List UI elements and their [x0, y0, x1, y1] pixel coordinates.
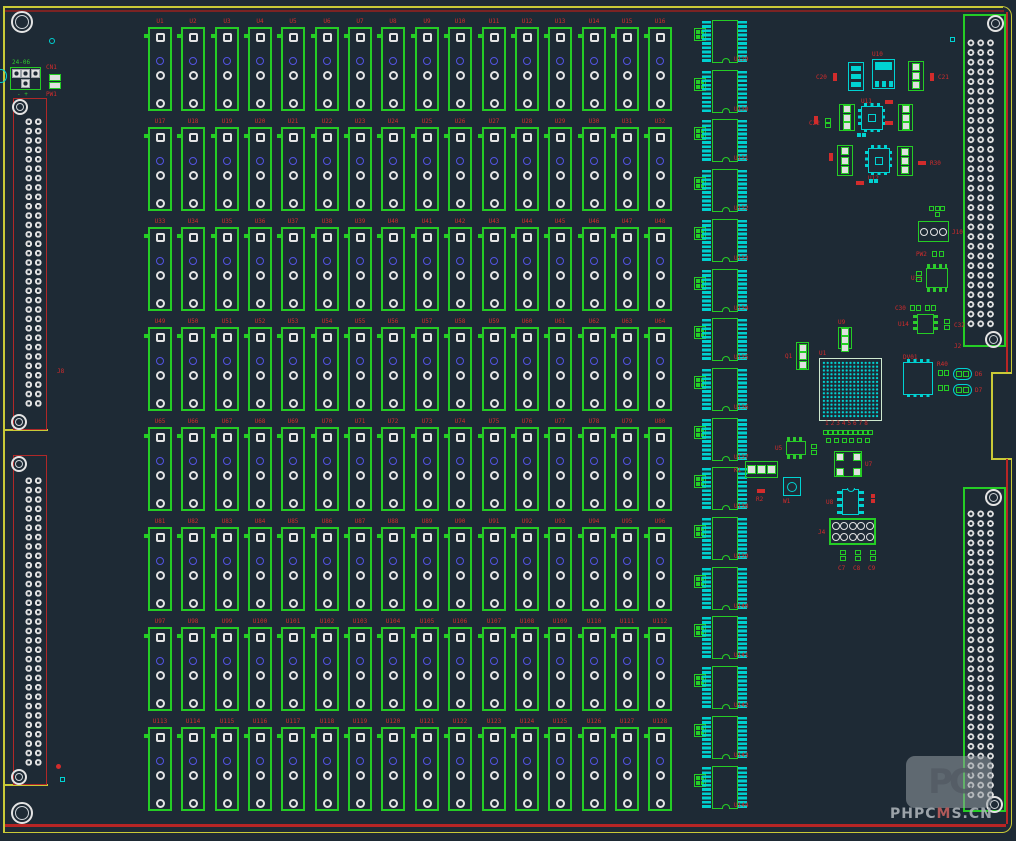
- pad: [423, 533, 432, 542]
- ref-designator: U88: [376, 518, 410, 525]
- pad: [799, 361, 807, 369]
- relay-component[interactable]: [448, 427, 472, 511]
- relay-component[interactable]: [515, 227, 539, 311]
- chip-2pad-component[interactable]: [931, 250, 945, 258]
- relay-component[interactable]: [281, 527, 305, 611]
- relay-component[interactable]: [515, 727, 539, 811]
- pin1-mark: [311, 334, 315, 338]
- terminal-block-component[interactable]: [918, 221, 949, 242]
- relay-component[interactable]: [548, 527, 572, 611]
- pad: [356, 33, 365, 42]
- pad: [556, 633, 565, 642]
- relay-component[interactable]: [582, 27, 606, 111]
- relay-component[interactable]: [348, 527, 372, 611]
- relay-component[interactable]: [281, 27, 305, 111]
- pad: [256, 399, 265, 408]
- relay-component[interactable]: [215, 327, 239, 411]
- pad: [916, 277, 922, 282]
- relay-component[interactable]: [215, 427, 239, 511]
- relay-component[interactable]: [248, 727, 272, 811]
- dip-ic-component[interactable]: U141: [694, 616, 750, 662]
- dip-ic-component[interactable]: U139: [694, 517, 750, 563]
- pad: [944, 385, 949, 391]
- signal-connector-component[interactable]: [48, 72, 62, 91]
- pad: [901, 157, 909, 165]
- diode-component[interactable]: [953, 368, 972, 380]
- relay-component[interactable]: [648, 627, 672, 711]
- resistor-component[interactable]: [884, 99, 894, 105]
- pad: [930, 228, 938, 236]
- relay-component[interactable]: [515, 427, 539, 511]
- ref-designator: U8: [376, 18, 410, 25]
- bga-ic-component[interactable]: [819, 358, 882, 421]
- pad: [889, 81, 893, 87]
- header-2x8-component[interactable]: [823, 428, 873, 445]
- pin1-mark: [311, 434, 315, 438]
- resistor-component[interactable]: [831, 72, 838, 82]
- pad-coil: [156, 57, 164, 65]
- relay-component[interactable]: [548, 727, 572, 811]
- pad: [323, 699, 332, 708]
- relay-component[interactable]: [148, 727, 172, 811]
- relay-component[interactable]: [615, 627, 639, 711]
- relay-component[interactable]: [181, 627, 205, 711]
- watermark-text-post: S.CN: [951, 806, 992, 822]
- dip8-ic-component[interactable]: [837, 489, 864, 515]
- relay-component[interactable]: [148, 227, 172, 311]
- relay-component[interactable]: [181, 527, 205, 611]
- relay-component[interactable]: [181, 127, 205, 211]
- chip-2pad-component[interactable]: [925, 305, 936, 311]
- chip-2pad-component[interactable]: [868, 548, 878, 563]
- relay-component[interactable]: [148, 327, 172, 411]
- relay-component[interactable]: [448, 27, 472, 111]
- mounting-hole: [11, 456, 27, 472]
- relay-component[interactable]: [548, 627, 572, 711]
- relay-component[interactable]: [215, 627, 239, 711]
- relay-component[interactable]: [482, 627, 506, 711]
- pin1-mark: [611, 134, 615, 138]
- relay-component[interactable]: [381, 327, 405, 411]
- dip-ic-component[interactable]: U140: [694, 567, 750, 613]
- ref-designator: U15: [610, 18, 644, 25]
- pad: [456, 333, 465, 342]
- dip-ic-component[interactable]: U143: [694, 716, 750, 762]
- relay-component[interactable]: [148, 27, 172, 111]
- resistor-component[interactable]: [827, 152, 834, 162]
- pad: [757, 465, 766, 474]
- pad: [832, 522, 840, 530]
- relay-component[interactable]: [482, 127, 506, 211]
- relay-component[interactable]: [281, 427, 305, 511]
- ref-designator: U141: [734, 652, 760, 659]
- pad-coil: [189, 557, 197, 565]
- pad: [490, 371, 499, 380]
- relay-component[interactable]: [148, 527, 172, 611]
- pad: [323, 33, 332, 42]
- relay-component[interactable]: [381, 527, 405, 611]
- chip-2pad-component[interactable]: [824, 118, 831, 128]
- pad: [556, 233, 565, 242]
- relay-component[interactable]: [415, 127, 439, 211]
- dip-ic-component[interactable]: U144: [694, 766, 750, 812]
- pad: [490, 599, 499, 608]
- relay-component[interactable]: [381, 227, 405, 311]
- chip-2pad-component[interactable]: [937, 369, 950, 377]
- relay-component[interactable]: [415, 27, 439, 111]
- pad: [356, 633, 365, 642]
- relay-component[interactable]: [281, 127, 305, 211]
- pad: [323, 199, 332, 208]
- chip-2pad-component[interactable]: [910, 305, 921, 311]
- transistor-3pad-component[interactable]: [839, 104, 855, 131]
- pad-array: [889, 151, 892, 170]
- relay-component[interactable]: [181, 427, 205, 511]
- chip-4pad-component[interactable]: [928, 205, 946, 217]
- resistor-component[interactable]: [869, 493, 876, 504]
- relay-component[interactable]: [348, 27, 372, 111]
- soic-ic-component[interactable]: [786, 437, 806, 459]
- relay-component[interactable]: [215, 227, 239, 311]
- relay-component[interactable]: [648, 327, 672, 411]
- relay-component[interactable]: [548, 327, 572, 411]
- pad: [944, 325, 950, 330]
- transistor-3pad-component[interactable]: [897, 146, 913, 176]
- resistor-component[interactable]: [756, 488, 766, 494]
- pad: [223, 699, 232, 708]
- pad: [289, 433, 298, 442]
- pad: [456, 33, 465, 42]
- pad-array-left: [702, 369, 711, 411]
- relay-component[interactable]: [381, 627, 405, 711]
- capacitor-component[interactable]: [869, 178, 878, 183]
- pad-coil: [289, 557, 297, 565]
- dip-ic-component[interactable]: U142: [694, 666, 750, 712]
- relay-component[interactable]: [515, 27, 539, 111]
- pad: [901, 166, 909, 174]
- pad: [811, 444, 817, 449]
- ref-designator: U93: [543, 518, 577, 525]
- pad: [289, 199, 298, 208]
- relay-component[interactable]: [315, 127, 339, 211]
- relay-component[interactable]: [648, 227, 672, 311]
- relay-component[interactable]: [215, 727, 239, 811]
- relay-component[interactable]: [181, 327, 205, 411]
- relay-component[interactable]: [615, 27, 639, 111]
- relay-component[interactable]: [648, 427, 672, 511]
- pad: [849, 522, 857, 530]
- relay-component[interactable]: [248, 327, 272, 411]
- pad: [656, 133, 665, 142]
- relay-component[interactable]: [348, 427, 372, 511]
- pad: [223, 233, 232, 242]
- sot-component[interactable]: [848, 62, 864, 91]
- ref-designator: U7: [865, 461, 872, 468]
- relay-component[interactable]: [215, 127, 239, 211]
- relay-component[interactable]: [281, 627, 305, 711]
- chip-2pad-component[interactable]: [838, 548, 848, 563]
- relay-component[interactable]: [548, 27, 572, 111]
- relay-component[interactable]: [615, 727, 639, 811]
- pad: [623, 599, 632, 608]
- pcb-canvas[interactable]: U1U2U3U4U5U6U7U8U9U10U11U12U13U14U15U16U…: [0, 0, 1016, 841]
- relay-component[interactable]: [482, 27, 506, 111]
- ref-designator: U85: [276, 518, 310, 525]
- ref-designator: U1: [819, 350, 826, 357]
- relay-component[interactable]: [482, 227, 506, 311]
- relay-component[interactable]: [315, 27, 339, 111]
- transistor-3pad-component[interactable]: [908, 61, 924, 91]
- pad: [289, 633, 298, 642]
- relay-component[interactable]: [415, 627, 439, 711]
- pad: [389, 333, 398, 342]
- relay-component[interactable]: [148, 427, 172, 511]
- resistor-component[interactable]: [855, 180, 865, 186]
- relay-component[interactable]: [582, 727, 606, 811]
- pin1-mark: [177, 234, 181, 238]
- pad: [840, 556, 846, 561]
- pad-array: [787, 437, 805, 441]
- relay-component[interactable]: [548, 427, 572, 511]
- relay-component[interactable]: [348, 327, 372, 411]
- relay-component[interactable]: [448, 727, 472, 811]
- header-2x5-component[interactable]: [829, 518, 876, 545]
- relay-component[interactable]: [615, 427, 639, 511]
- pad: [523, 433, 532, 442]
- ref-designator: U50: [176, 318, 210, 325]
- relay-component[interactable]: [448, 127, 472, 211]
- pad: [842, 438, 847, 443]
- diode-component[interactable]: [953, 384, 972, 396]
- cap-pad: [696, 35, 700, 39]
- relay-component[interactable]: [448, 527, 472, 611]
- pin1-mark: [411, 634, 415, 638]
- pad: [356, 671, 365, 680]
- relay-component[interactable]: [315, 727, 339, 811]
- pad: [456, 533, 465, 542]
- ic-body: [917, 314, 934, 334]
- relay-component[interactable]: [348, 627, 372, 711]
- relay-component[interactable]: [448, 627, 472, 711]
- dip-ic-component[interactable]: U132: [694, 169, 750, 215]
- relay-component[interactable]: [648, 27, 672, 111]
- relay-component[interactable]: [181, 227, 205, 311]
- pad: [556, 399, 565, 408]
- pin1-mark: [544, 734, 548, 738]
- capacitor-component[interactable]: [857, 132, 866, 137]
- qfn-ic-component[interactable]: [868, 148, 890, 173]
- soic-ic-component[interactable]: [926, 264, 948, 292]
- soic-ic-component[interactable]: [913, 314, 938, 334]
- relay-component[interactable]: [548, 227, 572, 311]
- chip-2pad-component[interactable]: [853, 548, 863, 563]
- pad: [356, 799, 365, 808]
- relay-component[interactable]: [582, 327, 606, 411]
- dip-ic-component[interactable]: U129: [694, 20, 750, 66]
- pad-coil: [656, 457, 664, 465]
- pad: [389, 433, 398, 442]
- relay-component[interactable]: [381, 727, 405, 811]
- relay-component[interactable]: [615, 527, 639, 611]
- relay-component[interactable]: [315, 527, 339, 611]
- relay-component[interactable]: [215, 527, 239, 611]
- relay-component[interactable]: [248, 627, 272, 711]
- pad: [256, 71, 265, 80]
- relay-component[interactable]: [315, 227, 339, 311]
- relay-component[interactable]: [515, 127, 539, 211]
- resistor-component[interactable]: [928, 72, 935, 82]
- pin1-mark: [377, 234, 381, 238]
- relay-component[interactable]: [415, 427, 439, 511]
- qfn-ic-component[interactable]: [834, 451, 862, 477]
- chip-2pad-component[interactable]: [810, 443, 818, 456]
- relay-component[interactable]: [381, 427, 405, 511]
- relay-component[interactable]: [315, 327, 339, 411]
- resistor-component[interactable]: [917, 160, 927, 166]
- pad: [456, 271, 465, 280]
- relay-component[interactable]: [415, 527, 439, 611]
- pad: [156, 633, 165, 642]
- pad-coil: [423, 557, 431, 565]
- regulator-component[interactable]: [872, 59, 895, 89]
- pad-coil: [189, 757, 197, 765]
- relay-component[interactable]: [582, 427, 606, 511]
- pin1-mark: [344, 634, 348, 638]
- pin1-mark: [578, 434, 582, 438]
- transistor-3pad-component[interactable]: [796, 342, 809, 370]
- ref-designator: U97: [143, 618, 177, 625]
- relay-component[interactable]: [648, 527, 672, 611]
- relay-component[interactable]: [615, 227, 639, 311]
- chip-2pad-component[interactable]: [937, 384, 950, 392]
- relay-component[interactable]: [415, 227, 439, 311]
- relay-component[interactable]: [582, 627, 606, 711]
- relay-component[interactable]: [348, 227, 372, 311]
- pad: [874, 179, 878, 183]
- relay-component[interactable]: [448, 327, 472, 411]
- relay-component[interactable]: [348, 727, 372, 811]
- dip-ic-component[interactable]: U133: [694, 219, 750, 265]
- dip-ic-component[interactable]: U130: [694, 70, 750, 116]
- pad: [356, 533, 365, 542]
- relay-component[interactable]: [648, 127, 672, 211]
- relay-component[interactable]: [381, 27, 405, 111]
- relay-component[interactable]: [582, 227, 606, 311]
- ref-designator: U38: [310, 218, 344, 225]
- relay-component[interactable]: [248, 127, 272, 211]
- mounting-hole: [11, 802, 33, 824]
- pad: [837, 498, 842, 501]
- pin1-mark: [478, 134, 482, 138]
- pin1-mark: [177, 34, 181, 38]
- pad: [656, 799, 665, 808]
- relay-component[interactable]: [281, 327, 305, 411]
- transistor-3pad-component[interactable]: [898, 104, 913, 131]
- dip-ic-component[interactable]: U138: [694, 467, 750, 513]
- relay-component[interactable]: [482, 727, 506, 811]
- ref-designator: R2: [756, 496, 763, 503]
- relay-component[interactable]: [348, 127, 372, 211]
- pad: [523, 371, 532, 380]
- power-connector-component[interactable]: [10, 67, 41, 90]
- pad-coil: [389, 757, 397, 765]
- relay-component[interactable]: [148, 627, 172, 711]
- dip-ic-component[interactable]: U134: [694, 269, 750, 315]
- chip-2pad-component[interactable]: [943, 317, 951, 332]
- transistor-3pad-component[interactable]: [837, 145, 853, 176]
- qfn-ic-component[interactable]: [861, 106, 883, 130]
- pad-coil: [356, 57, 364, 65]
- relay-component[interactable]: [248, 27, 272, 111]
- relay-component[interactable]: [515, 627, 539, 711]
- pad-coil: [156, 457, 164, 465]
- pin1-mark: [277, 134, 281, 138]
- relay-component[interactable]: [181, 727, 205, 811]
- relay-component[interactable]: [415, 327, 439, 411]
- relay-component[interactable]: [615, 327, 639, 411]
- relay-component[interactable]: [315, 627, 339, 711]
- pad: [623, 433, 632, 442]
- relay-component[interactable]: [515, 327, 539, 411]
- left-connector-lower-pads: [24, 476, 43, 768]
- relay-component[interactable]: [181, 27, 205, 111]
- relay-component[interactable]: [548, 127, 572, 211]
- relay-component[interactable]: [582, 127, 606, 211]
- pad: [832, 533, 840, 541]
- relay-component[interactable]: [381, 127, 405, 211]
- relay-component[interactable]: [215, 27, 239, 111]
- relay-component[interactable]: [248, 427, 272, 511]
- pin1-mark: [244, 134, 248, 138]
- ref-designator: U87: [343, 518, 377, 525]
- relay-component[interactable]: [248, 227, 272, 311]
- relay-component[interactable]: [281, 227, 305, 311]
- transistor-3pad-component[interactable]: [745, 461, 778, 478]
- relay-component[interactable]: [315, 427, 339, 511]
- relay-component[interactable]: [448, 227, 472, 311]
- pin1-mark: [244, 534, 248, 538]
- ref-designator: U131: [734, 155, 760, 162]
- relay-component[interactable]: [482, 527, 506, 611]
- pad: [289, 799, 298, 808]
- transistor-3pad-component[interactable]: [838, 327, 852, 349]
- qfp-ic-component[interactable]: [903, 362, 933, 395]
- ref-designator: U22: [310, 118, 344, 125]
- relay-component[interactable]: [482, 427, 506, 511]
- pin1-mark: [344, 434, 348, 438]
- pad: [523, 299, 532, 308]
- dip-ic-component[interactable]: U131: [694, 119, 750, 165]
- relay-component[interactable]: [582, 527, 606, 611]
- resistor-component[interactable]: [884, 120, 894, 126]
- trimmer-component[interactable]: [783, 477, 801, 496]
- relay-component[interactable]: [281, 727, 305, 811]
- dip-ic-component[interactable]: U137: [694, 418, 750, 464]
- relay-component[interactable]: [615, 127, 639, 211]
- pad: [156, 199, 165, 208]
- dip-ic-component[interactable]: U136: [694, 368, 750, 414]
- chip-2pad-component[interactable]: [915, 270, 923, 283]
- relay-component[interactable]: [248, 527, 272, 611]
- relay-component[interactable]: [148, 127, 172, 211]
- relay-component[interactable]: [515, 527, 539, 611]
- pad: [456, 71, 465, 80]
- relay-component[interactable]: [482, 327, 506, 411]
- pad: [656, 471, 665, 480]
- relay-component[interactable]: [648, 727, 672, 811]
- relay-component[interactable]: [415, 727, 439, 811]
- dip-ic-component[interactable]: U135: [694, 318, 750, 364]
